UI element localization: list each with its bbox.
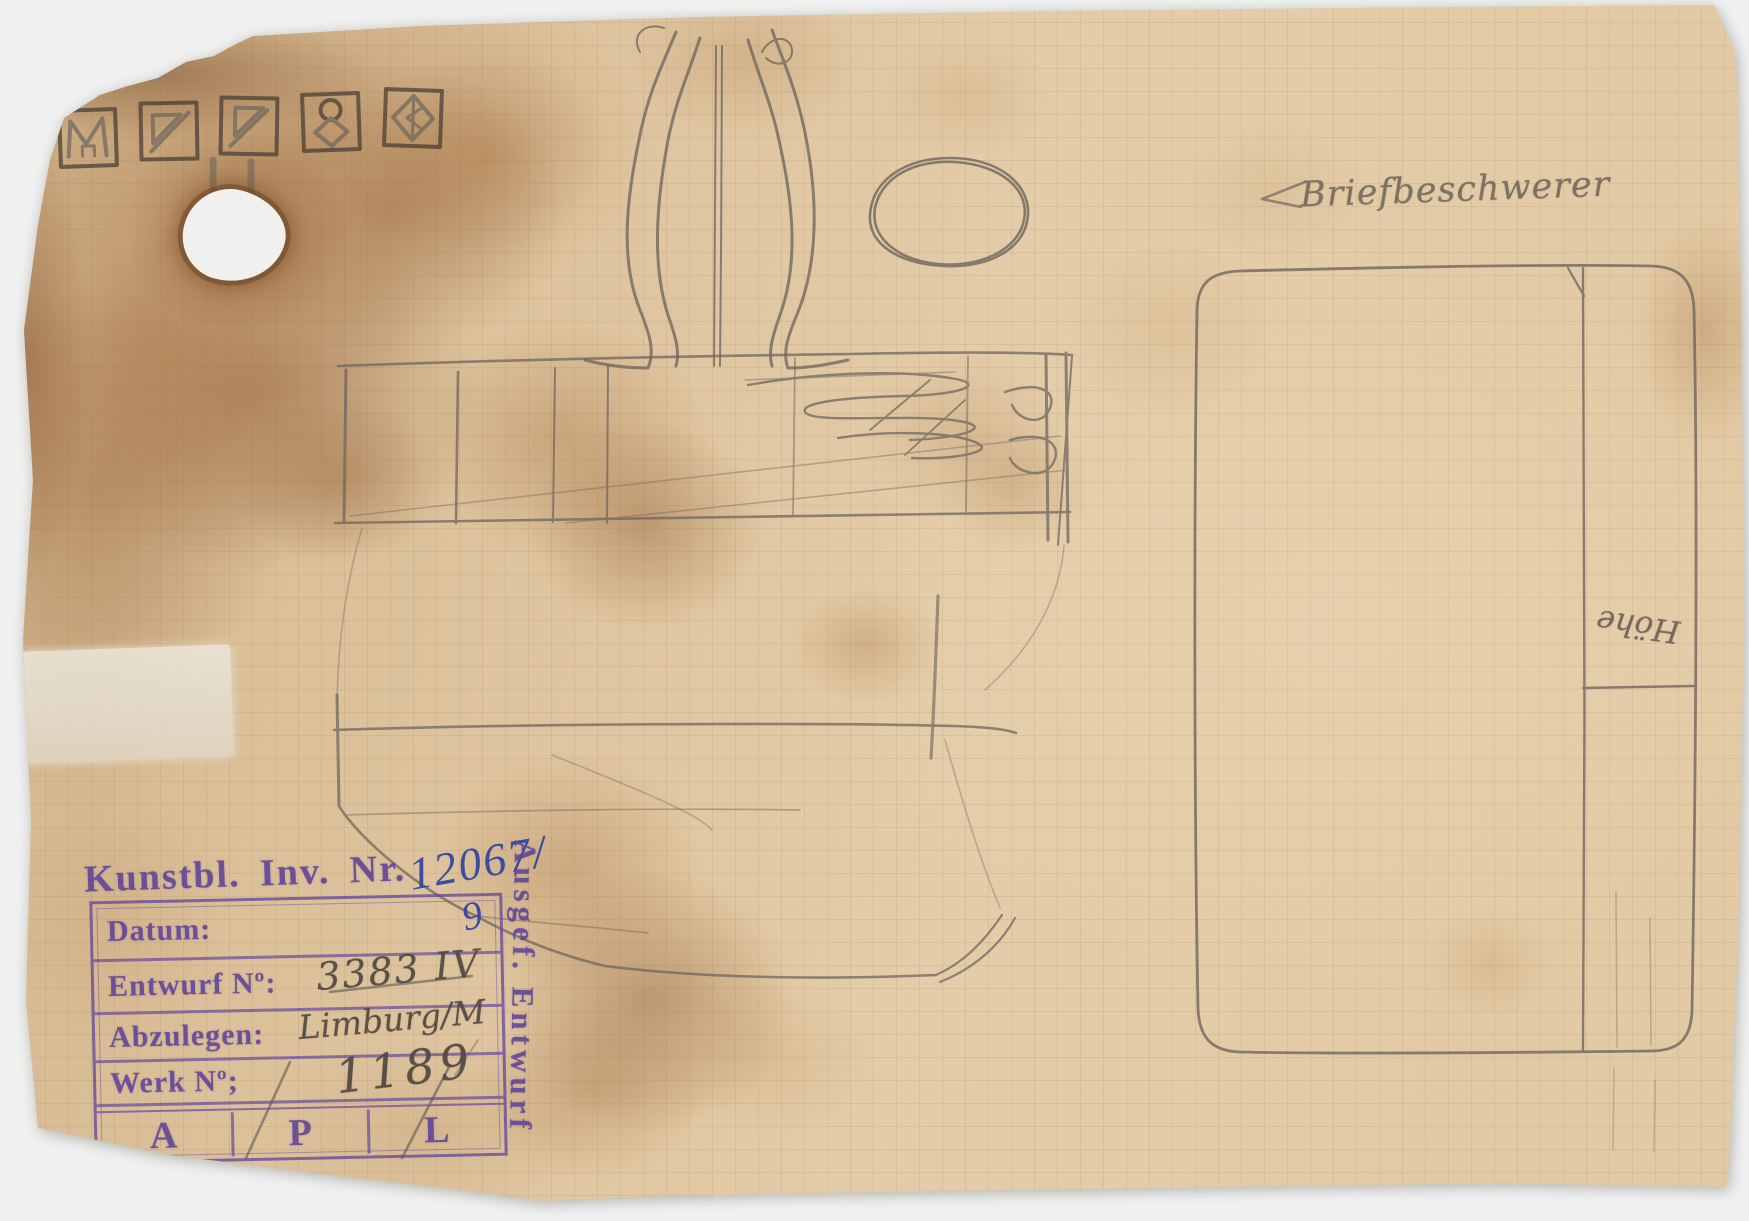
- maker-mark-monogram-m-icon: [59, 109, 117, 167]
- ausgef-entwurf-stamp: Ausgef. Entwurf: [501, 840, 543, 1201]
- stamp-cell-l: L: [367, 1107, 505, 1154]
- paper-shadow-wrap: Kunstbl. Inv. Nr. 12067/ 9 Datum: Entwur…: [0, 0, 1749, 1221]
- stamp-cell-p: P: [230, 1110, 368, 1157]
- entwurf-label: Entwurf Nº:: [108, 966, 277, 1004]
- maker-mark-triangle-diagonal-2-icon: [221, 98, 278, 155]
- abzulegen-label: Abzulegen:: [109, 1017, 265, 1054]
- werk-label: Werk Nº;: [110, 1064, 239, 1101]
- maker-mark-circle-diamond-figure-icon: [302, 93, 360, 151]
- scanned-design-sheet: Kunstbl. Inv. Nr. 12067/ 9 Datum: Entwur…: [0, 0, 1749, 1221]
- paper: Kunstbl. Inv. Nr. 12067/ 9 Datum: Entwur…: [0, 0, 1749, 1221]
- stamp-row-apl: A P L: [97, 1103, 505, 1162]
- stamp-cell-a: A: [97, 1112, 232, 1159]
- datum-label: Datum:: [107, 912, 212, 948]
- maker-mark-diamond-arrow-icon: [384, 89, 442, 147]
- maker-mark-triangle-diagonal-icon: [141, 103, 198, 160]
